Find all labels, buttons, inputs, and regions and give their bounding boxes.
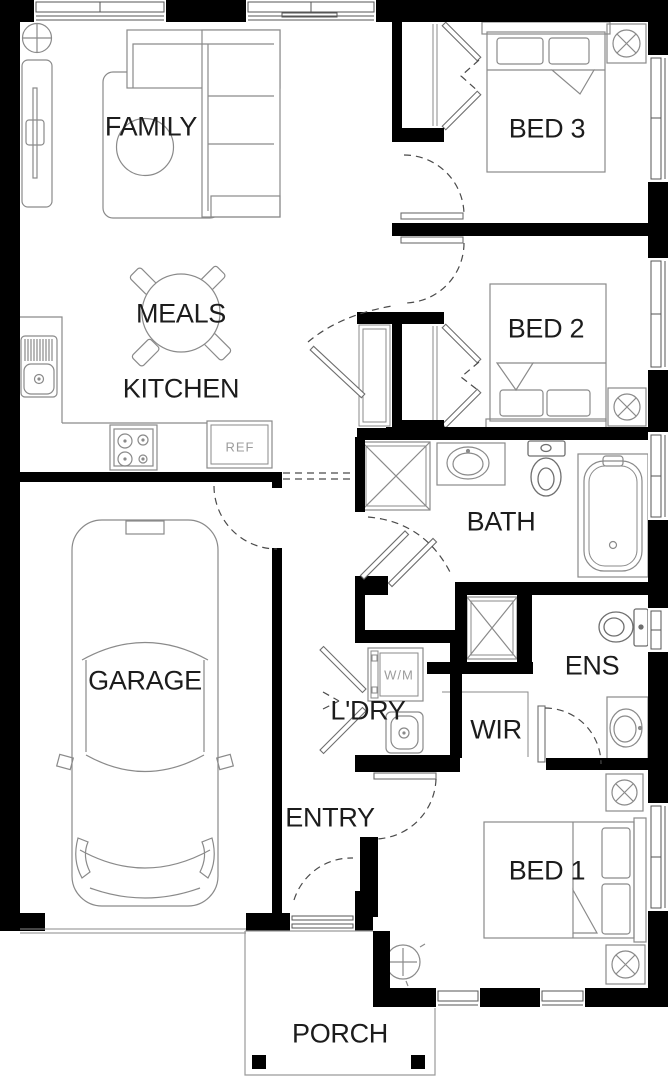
room-label-kitchen: KITCHEN xyxy=(123,374,239,405)
tv-unit xyxy=(22,60,52,207)
door-ens xyxy=(538,706,601,764)
shower xyxy=(362,442,430,510)
door-entry-hall xyxy=(374,773,436,839)
exhaust-fan-icon xyxy=(606,774,643,811)
door-garage xyxy=(214,486,277,549)
room-label-ens: ENS xyxy=(565,651,620,682)
car xyxy=(57,520,234,906)
toilet xyxy=(599,609,648,646)
window xyxy=(34,0,166,22)
room-label-porch: PORCH xyxy=(292,1019,388,1050)
fridge-label: REF xyxy=(226,440,255,455)
door-bed3 xyxy=(401,155,464,219)
porch-post xyxy=(252,1055,266,1069)
room-label-bath: BATH xyxy=(467,507,536,538)
bed xyxy=(486,284,606,431)
floor-plan-drawing xyxy=(0,0,668,1078)
room-label-bed1: BED 1 xyxy=(509,856,586,887)
room-label-meals: MEALS xyxy=(136,299,226,330)
floor-plan: FAMILY MEALS KITCHEN BED 3 BED 2 BATH GA… xyxy=(0,0,668,1078)
window xyxy=(648,55,668,182)
bathtub xyxy=(578,454,648,577)
kitchen-opening xyxy=(283,473,354,479)
exhaust-fan-icon xyxy=(606,945,645,984)
wardrobe xyxy=(433,22,481,130)
porch-post xyxy=(411,1055,425,1069)
vanity xyxy=(437,443,505,485)
linen-cupboard xyxy=(359,325,390,426)
exhaust-fan-icon xyxy=(608,388,646,426)
vanity xyxy=(607,697,648,760)
window xyxy=(246,0,376,22)
room-label-bed2: BED 2 xyxy=(508,314,585,345)
room-label-wir: WIR xyxy=(470,715,522,746)
shower xyxy=(467,597,517,659)
washer-label: W/M xyxy=(384,668,414,683)
door-bed2 xyxy=(401,237,464,303)
kitchen-sink xyxy=(21,336,57,397)
cooktop xyxy=(110,425,157,470)
room-label-family: FAMILY xyxy=(105,112,197,143)
window xyxy=(648,803,668,911)
toilet xyxy=(528,441,565,496)
room-label-bed3: BED 3 xyxy=(509,114,586,145)
window xyxy=(648,608,668,652)
window xyxy=(648,432,668,520)
front-door xyxy=(292,858,353,928)
room-label-entry: ENTRY xyxy=(285,803,375,834)
wardrobe xyxy=(433,324,481,428)
ceiling-fan-icon xyxy=(23,24,52,53)
bed xyxy=(482,22,610,172)
exhaust-fan-icon xyxy=(607,24,646,63)
window xyxy=(540,988,585,1007)
room-label-garage: GARAGE xyxy=(88,666,202,697)
garage-door xyxy=(20,929,246,933)
room-label-ldry: L'DRY xyxy=(330,696,405,727)
window xyxy=(648,258,668,370)
window xyxy=(436,988,480,1007)
